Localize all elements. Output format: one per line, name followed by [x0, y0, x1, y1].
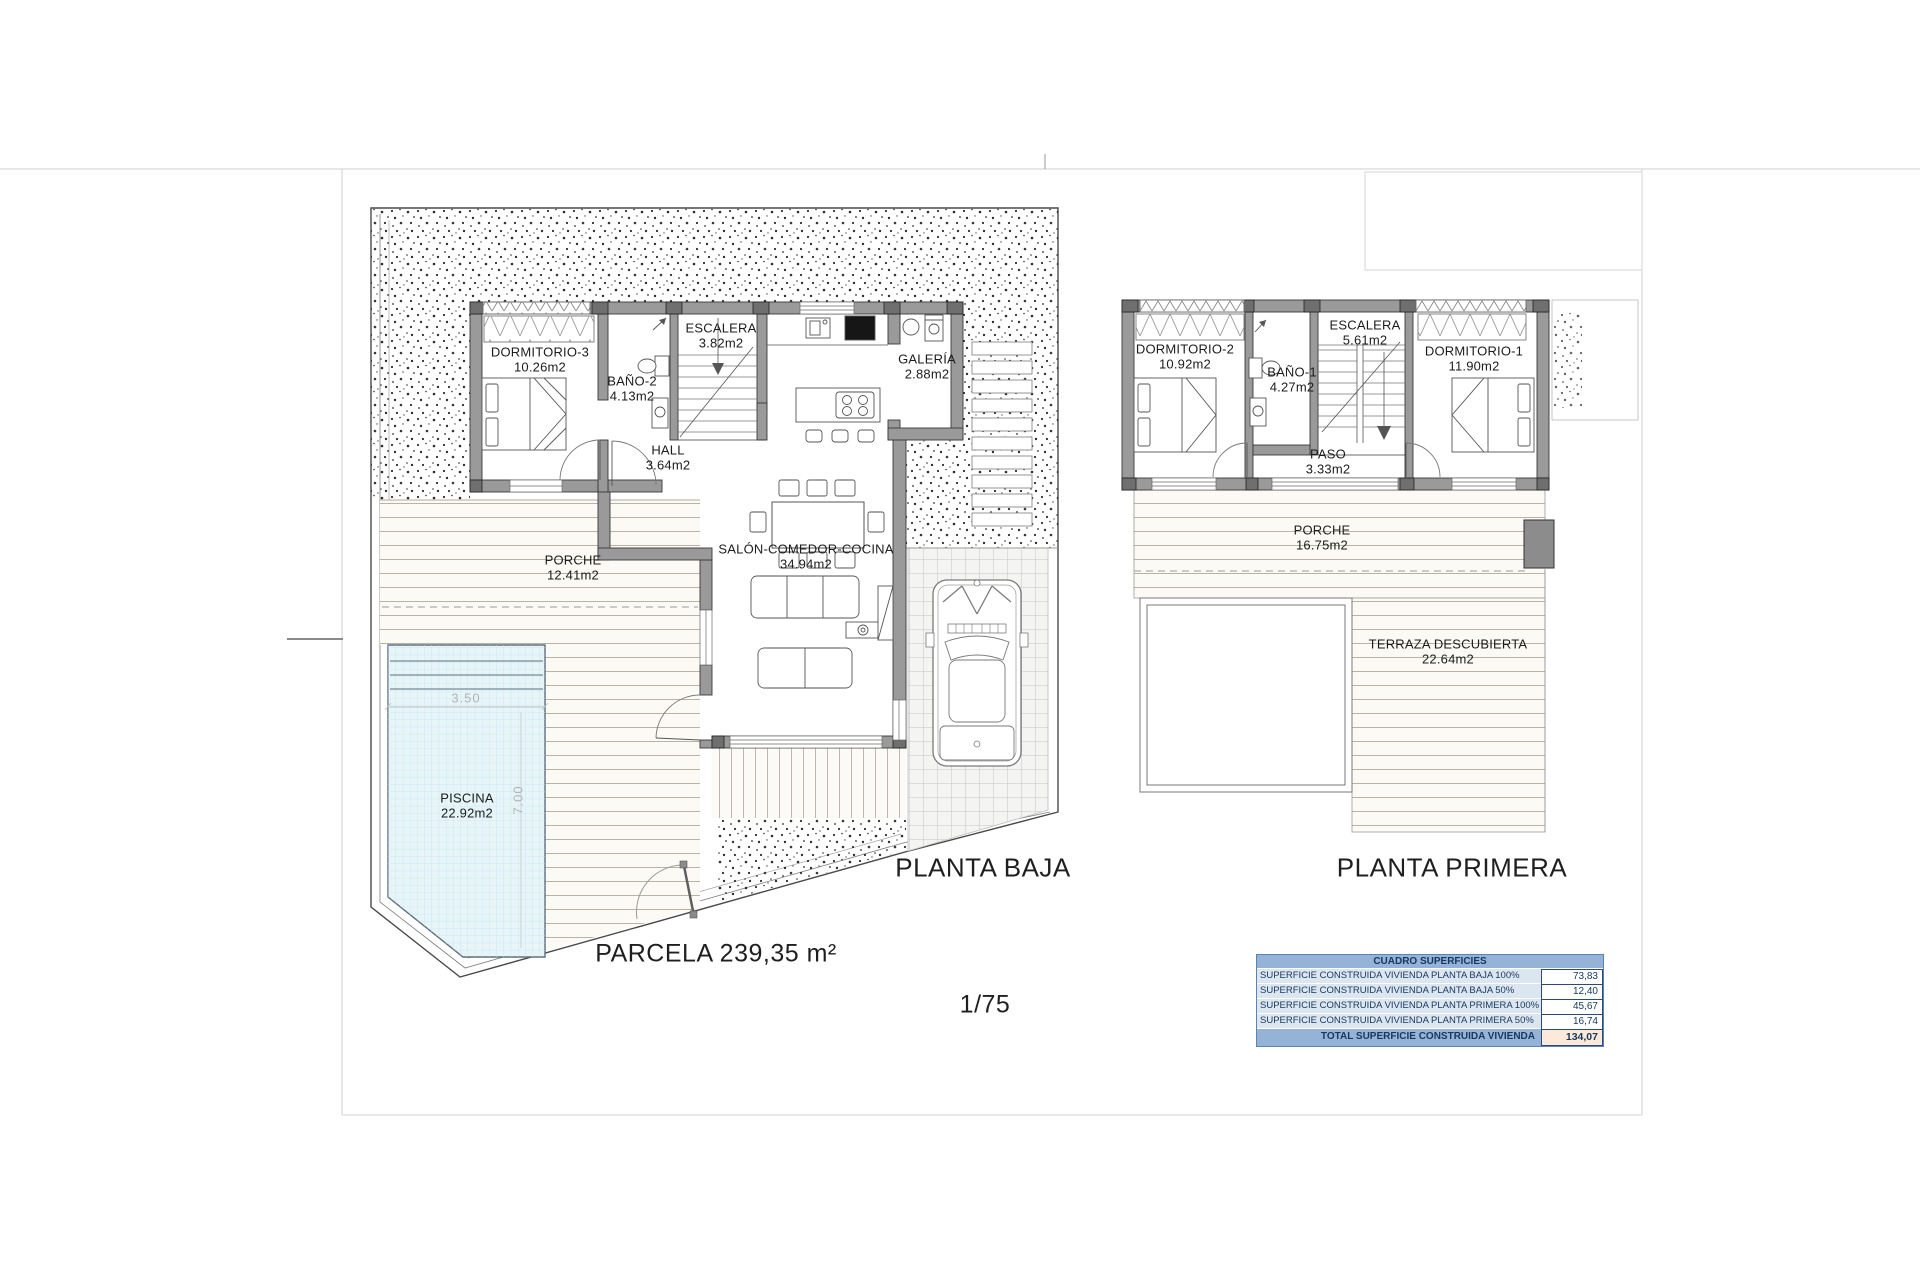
gravel-area: [718, 818, 906, 903]
parcel-area-label: PARCELA 239,35 m²: [595, 940, 836, 969]
table-row: SUPERFICIE CONSTRUIDA VIVIENDA PLANTA PR…: [1257, 1014, 1603, 1029]
plan-planta-primera: [1122, 300, 1638, 832]
bedroom1-furniture: [1418, 314, 1534, 452]
room-label-galeria: GALERÍA 2.88m2: [898, 352, 956, 383]
room-label-hall: HALL 3.64m2: [646, 443, 691, 474]
room-label-paso: PASO 3.33m2: [1306, 447, 1351, 478]
room-label-bano-2: BAÑO-2 4.13m2: [607, 374, 657, 405]
room-label-dormitorio-2: DORMITORIO-2 10.92m2: [1136, 342, 1234, 373]
room-label-piscina: PISCINA 22.92m2: [440, 791, 493, 822]
lower-roof-outline: [1140, 598, 1352, 792]
terrace-deck: [1352, 598, 1545, 832]
table-row: SUPERFICIE CONSTRUIDA VIVIENDA PLANTA BA…: [1257, 969, 1603, 984]
room-label-bano-1: BAÑO-1 4.27m2: [1267, 365, 1317, 396]
room-label-porche-pb: PORCHE 12.41m2: [545, 553, 602, 584]
pillar: [1524, 520, 1554, 568]
plan-title-planta-baja: PLANTA BAJA: [895, 853, 1071, 884]
side-deck: [545, 645, 700, 951]
room-label-dormitorio-1: DORMITORIO-1 11.90m2: [1425, 344, 1523, 375]
room-label-escalera-pp: ESCALERA 5.61m2: [1330, 318, 1401, 349]
table-row: SUPERFICIE CONSTRUIDA VIVIENDA PLANTA BA…: [1257, 984, 1603, 999]
floor-plan-drawing: [0, 0, 1920, 1280]
areas-table-title: CUADRO SUPERFICIES: [1257, 955, 1603, 969]
room-label-dormitorio-3: DORMITORIO-3 10.26m2: [491, 345, 589, 376]
floor-plan-sheet: DORMITORIO-3 10.26m2 BAÑO-2 4.13m2 ESCAL…: [0, 0, 1920, 1280]
plan-title-planta-primera: PLANTA PRIMERA: [1337, 853, 1567, 884]
table-row: SUPERFICIE CONSTRUIDA VIVIENDA PLANTA PR…: [1257, 999, 1603, 1014]
table-total-row: TOTAL SUPERFICIE CONSTRUIDA VIVIENDA 134…: [1257, 1029, 1603, 1046]
room-label-salon: SALÓN-COMEDOR-COCINA 34.94m2: [718, 542, 893, 573]
room-label-terraza: TERRAZA DESCUBIERTA 22.64m2: [1369, 637, 1528, 668]
pool-width-dimension: 3.50: [451, 691, 480, 706]
walkway: [712, 748, 906, 818]
room-label-escalera-pb: ESCALERA 3.82m2: [686, 321, 757, 352]
room-label-porche-pp: PORCHE 16.75m2: [1294, 523, 1351, 554]
bedroom2-furniture: [1134, 314, 1244, 452]
pool-length-dimension: 7.00: [511, 785, 526, 814]
scale-label: 1/75: [960, 991, 1011, 1020]
upper-stairs: [1318, 342, 1405, 455]
areas-table: CUADRO SUPERFICIES SUPERFICIE CONSTRUIDA…: [1256, 954, 1604, 1047]
car: [926, 580, 1028, 766]
porch-deck: [380, 500, 700, 645]
